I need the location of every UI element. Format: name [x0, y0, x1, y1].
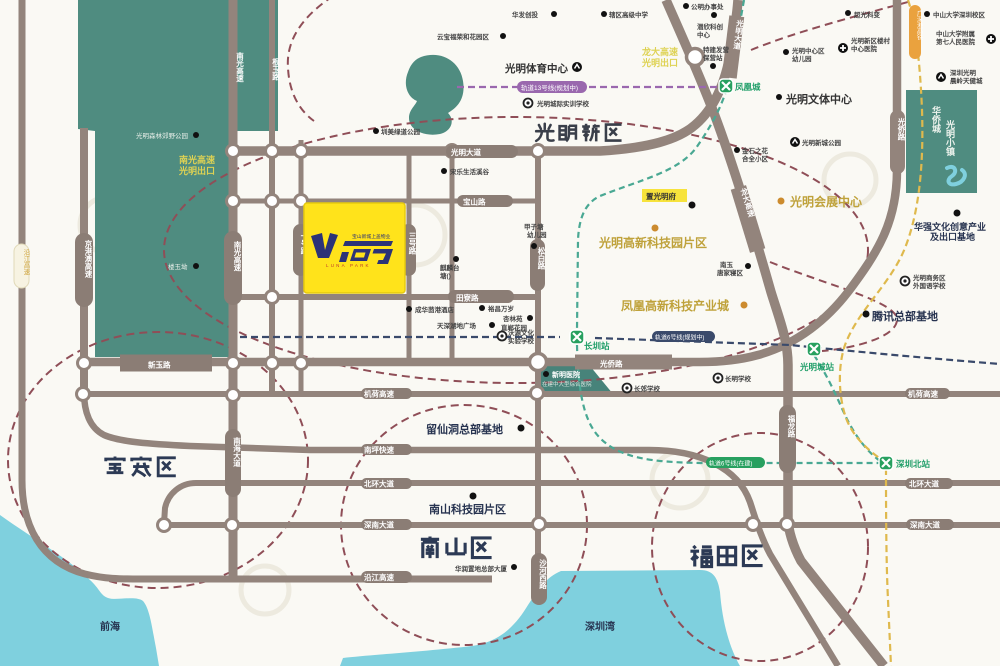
svg-text:超光科变: 超光科变 — [853, 10, 881, 19]
svg-text:光明高新科技园片区: 光明高新科技园片区 — [598, 235, 707, 250]
svg-text:深圳光明: 深圳光明 — [950, 68, 977, 77]
svg-text:华润置地总部大厦: 华润置地总部大厦 — [455, 564, 508, 573]
svg-text:凤凰高新科技产业城: 凤凰高新科技产业城 — [621, 298, 729, 313]
svg-text:沃源文化: 沃源文化 — [508, 328, 535, 337]
svg-text:天深湖地广场: 天深湖地广场 — [437, 321, 477, 330]
svg-text:长明学校: 长明学校 — [725, 374, 752, 383]
svg-text:云宝福荣和花园区: 云宝福荣和花园区 — [437, 32, 490, 41]
svg-text:置光明府: 置光明府 — [646, 191, 676, 201]
svg-text:光明商务区: 光明商务区 — [912, 273, 946, 282]
svg-text:光侨路: 光侨路 — [599, 359, 623, 369]
svg-text:光明出口: 光明出口 — [178, 165, 215, 176]
svg-text:幼儿园: 幼儿园 — [792, 54, 812, 63]
svg-text:光明出口: 光明出口 — [641, 57, 678, 68]
svg-text:机荷高速: 机荷高速 — [908, 389, 938, 399]
svg-text:南光高速: 南光高速 — [233, 240, 242, 272]
svg-text:北环大道: 北环大道 — [909, 479, 939, 489]
svg-text:外国语学校: 外国语学校 — [913, 281, 946, 290]
svg-text:中心医院: 中心医院 — [851, 44, 878, 53]
svg-text:南光高速: 南光高速 — [179, 154, 215, 165]
svg-text:麒麟台: 麒麟台 — [440, 263, 460, 272]
svg-text:金石之花: 金石之花 — [741, 146, 769, 155]
svg-text:轨道6号线(在建): 轨道6号线(在建) — [709, 460, 752, 468]
svg-text:光侨路: 光侨路 — [897, 117, 906, 142]
svg-text:华发创投: 华发创投 — [512, 10, 539, 19]
svg-text:新玉路: 新玉路 — [148, 360, 171, 370]
svg-text:保营站: 保营站 — [702, 53, 723, 62]
svg-text:根玉路: 根玉路 — [271, 57, 280, 82]
svg-text:塘(): 塘() — [440, 271, 451, 280]
svg-text:前海: 前海 — [100, 620, 120, 633]
svg-text:裕昌万岁: 裕昌万岁 — [487, 304, 514, 313]
svg-text:松白路: 松白路 — [537, 246, 546, 271]
svg-text:南山科技园片区: 南山科技园片区 — [429, 502, 506, 516]
svg-text:合全小区: 合全小区 — [741, 154, 769, 163]
svg-text:田寮路: 田寮路 — [456, 293, 479, 303]
svg-text:深圳北站: 深圳北站 — [896, 459, 931, 469]
svg-text:中心: 中心 — [697, 30, 711, 39]
svg-text:南海大道: 南海大道 — [232, 436, 241, 469]
svg-text:楼玉坳: 楼玉坳 — [168, 262, 188, 271]
svg-text:福龙路: 福龙路 — [787, 414, 796, 439]
svg-text:宝山路: 宝山路 — [463, 197, 486, 207]
svg-text:轨道6号线(规划中): 轨道6号线(规划中) — [655, 334, 704, 342]
svg-text:京港澳高速: 京港澳高速 — [84, 239, 93, 279]
svg-text:长郊学校: 长郊学校 — [634, 384, 661, 393]
svg-text:甲子塘: 甲子塘 — [524, 222, 544, 231]
svg-text:华强文化创意产业: 华强文化创意产业 — [914, 221, 986, 232]
svg-text:宋乐生活溪谷: 宋乐生活溪谷 — [450, 167, 490, 176]
svg-text:南坪快速: 南坪快速 — [364, 445, 394, 455]
svg-text:中山大学附属: 中山大学附属 — [936, 29, 975, 38]
svg-text:凤凰城: 凤凰城 — [735, 82, 761, 92]
svg-text:光明森林郊野公园: 光明森林郊野公园 — [136, 131, 188, 140]
svg-text:中山大学深圳校区: 中山大学深圳校区 — [933, 10, 986, 19]
svg-text:光明城际实训学校: 光明城际实训学校 — [536, 99, 590, 108]
svg-text:光明小镇: 光明小镇 — [945, 119, 956, 157]
svg-text:深圳湾: 深圳湾 — [585, 620, 615, 633]
svg-text:光明体育中心: 光明体育中心 — [504, 62, 568, 75]
svg-text:潜欣科创: 潜欣科创 — [697, 22, 724, 31]
svg-text:光明城站: 光明城站 — [799, 362, 835, 372]
svg-text:辖区高级中学: 辖区高级中学 — [609, 10, 649, 19]
svg-text:杏林苑: 杏林苑 — [502, 314, 523, 323]
svg-text:光明中心区: 光明中心区 — [791, 46, 825, 55]
svg-text:光明会展中心: 光明会展中心 — [789, 194, 862, 209]
svg-text:三号路: 三号路 — [408, 232, 417, 256]
svg-text:第七人民医院: 第七人民医院 — [936, 37, 976, 46]
svg-text:机荷高速: 机荷高速 — [364, 389, 394, 399]
svg-text:腾讯总部基地: 腾讯总部基地 — [872, 309, 938, 323]
svg-text:沿江高速: 沿江高速 — [364, 572, 394, 582]
svg-text:LUNA PARK: LUNA PARK — [326, 263, 371, 268]
svg-text:圳美绿道公园: 圳美绿道公园 — [381, 127, 421, 136]
svg-text:深南大道: 深南大道 — [910, 520, 940, 530]
svg-text:北环大道: 北环大道 — [364, 479, 394, 489]
svg-text:光明文体中心: 光明文体中心 — [785, 92, 852, 106]
svg-text:光明新城公园: 光明新城公园 — [801, 138, 842, 147]
svg-text:实验学校: 实验学校 — [508, 336, 535, 345]
svg-text:晨岭天健城: 晨岭天健城 — [950, 76, 983, 85]
svg-text:南玉: 南玉 — [720, 260, 734, 269]
svg-text:宝山新城上盖物业: 宝山新城上盖物业 — [352, 233, 391, 240]
svg-text:公明办事处: 公明办事处 — [691, 2, 724, 11]
svg-text:光明新区楼村: 光明新区楼村 — [850, 36, 891, 45]
svg-text:广深港高铁: 广深港高铁 — [916, 9, 923, 41]
svg-text:光明大道: 光明大道 — [450, 147, 481, 157]
svg-text:南光高速: 南光高速 — [235, 51, 244, 84]
svg-text:长圳站: 长圳站 — [584, 341, 610, 351]
svg-text:龙大高速: 龙大高速 — [641, 46, 678, 57]
svg-text:幼儿园: 幼儿园 — [527, 230, 547, 239]
svg-text:唐家寝区: 唐家寝区 — [717, 268, 744, 277]
svg-text:沙河西路: 沙河西路 — [538, 559, 547, 591]
svg-text:在建中大型综合医院: 在建中大型综合医院 — [542, 380, 592, 388]
svg-text:特建发营: 特建发营 — [703, 45, 730, 54]
svg-text:轨道13号线(规划中): 轨道13号线(规划中) — [521, 83, 578, 92]
svg-text:深南大道: 深南大道 — [364, 520, 394, 530]
svg-text:留仙洞总部基地: 留仙洞总部基地 — [426, 422, 503, 436]
svg-text:及出口基地: 及出口基地 — [930, 231, 975, 242]
svg-text:新明医院: 新明医院 — [552, 370, 580, 379]
svg-text:成华茴港酒店: 成华茴港酒店 — [415, 305, 455, 314]
svg-text:华侨城: 华侨城 — [931, 105, 942, 134]
